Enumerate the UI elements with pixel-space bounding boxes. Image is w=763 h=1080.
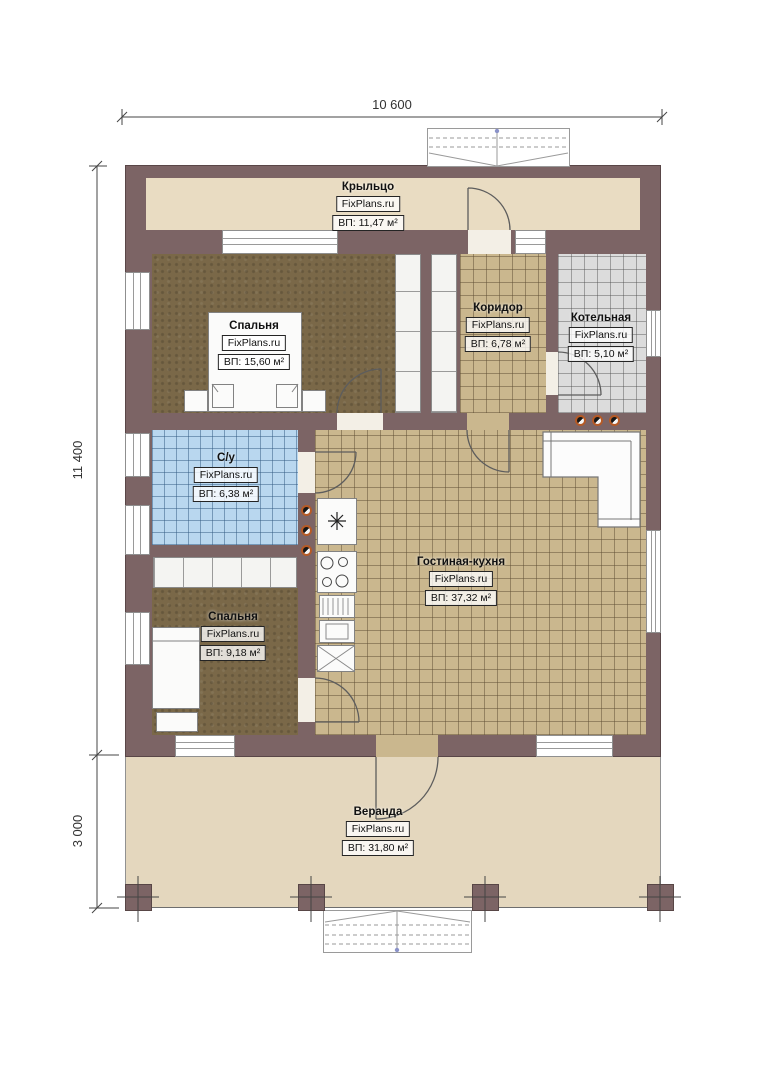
living-window-right	[646, 530, 661, 633]
single-bed	[152, 627, 200, 709]
room-name: Веранда	[354, 806, 403, 818]
label-boiler: Котельная FixPlans.ru ВП: 5,10 м²	[568, 312, 634, 362]
label-porch: Крыльцо FixPlans.ru ВП: 11,47 м²	[332, 181, 404, 231]
room-area: ВП: 15,60 м²	[218, 354, 290, 370]
dishwasher	[319, 595, 355, 618]
watermark: FixPlans.ru	[346, 821, 411, 837]
watermark: FixPlans.ru	[466, 317, 531, 333]
flue-vent-icon	[592, 415, 603, 426]
boiler-window-right	[646, 310, 661, 357]
entrance-stairs-top	[427, 128, 570, 167]
living-window-bottom	[536, 735, 613, 757]
flue-vent-icon	[301, 505, 312, 516]
veranda-column	[647, 884, 674, 911]
veranda-stairs-bottom	[323, 910, 472, 953]
label-bathroom: С/у FixPlans.ru ВП: 6,38 м²	[193, 452, 259, 502]
nightstand-right	[302, 390, 326, 412]
bathroom-door-opening	[298, 452, 315, 493]
pillow-right	[276, 384, 298, 408]
bedroom2-window-bottom	[175, 735, 235, 757]
room-name: Крыльцо	[342, 181, 394, 193]
room-area: ВП: 31,80 м²	[342, 840, 414, 856]
flue-vent-icon	[301, 545, 312, 556]
corridor-wardrobe	[431, 254, 457, 413]
bedside-table	[156, 712, 198, 732]
watermark: FixPlans.ru	[569, 327, 634, 343]
watermark: FixPlans.ru	[336, 196, 401, 212]
bedroom2-window-left	[125, 612, 150, 665]
flue-vent-icon	[301, 525, 312, 536]
kitchen-cabinet	[319, 620, 355, 643]
corridor-living-opening	[467, 413, 509, 430]
room-area: ВП: 37,32 м²	[425, 590, 497, 606]
room-name: Спальня	[208, 611, 258, 623]
veranda-column	[125, 884, 152, 911]
room-name: Спальня	[229, 320, 279, 332]
fridge	[317, 645, 355, 672]
bathroom-window-lower	[125, 505, 150, 555]
label-bedroom2: Спальня FixPlans.ru ВП: 9,18 м²	[200, 611, 266, 661]
veranda-column	[298, 884, 325, 911]
label-veranda: Веранда FixPlans.ru ВП: 31,80 м²	[342, 806, 414, 856]
dimension-height-veranda: 3 000	[70, 815, 85, 848]
stove	[317, 551, 357, 593]
watermark: FixPlans.ru	[429, 571, 494, 587]
room-area: ВП: 6,78 м²	[465, 336, 531, 352]
entry-door-opening	[468, 230, 511, 254]
bedroom1-window-left	[125, 272, 150, 330]
room-area: ВП: 5,10 м²	[568, 346, 634, 362]
label-bedroom1: Спальня FixPlans.ru ВП: 15,60 м²	[218, 320, 290, 370]
watermark: FixPlans.ru	[222, 335, 287, 351]
floor-plan: 10 600 11 400 3 000	[0, 0, 763, 1080]
flue-vent-icon	[609, 415, 620, 426]
dimension-height-main: 11 400	[70, 441, 85, 480]
veranda-door-opening	[376, 735, 438, 757]
bedroom1-wardrobe	[395, 254, 421, 413]
bedroom1-door-opening	[337, 413, 383, 430]
room-name: С/у	[217, 452, 235, 464]
room-area: ВП: 6,38 м²	[193, 486, 259, 502]
bedroom2-door-opening	[298, 678, 315, 722]
nightstand-left	[184, 390, 208, 412]
room-area: ВП: 9,18 м²	[200, 645, 266, 661]
watermark: FixPlans.ru	[194, 467, 259, 483]
room-name: Котельная	[571, 312, 631, 324]
kitchen-counter	[317, 498, 357, 545]
label-corridor: Коридор FixPlans.ru ВП: 6,78 м²	[465, 302, 531, 352]
room-name: Гостиная-кухня	[417, 556, 505, 568]
watermark: FixPlans.ru	[201, 626, 266, 642]
bathroom-cabinet-row	[153, 557, 297, 588]
boiler-door-opening	[546, 352, 558, 395]
room-name: Коридор	[473, 302, 523, 314]
label-living: Гостиная-кухня FixPlans.ru ВП: 37,32 м²	[417, 556, 505, 606]
veranda-column	[472, 884, 499, 911]
corridor-window-porch	[515, 230, 546, 254]
room-area: ВП: 11,47 м²	[332, 215, 404, 231]
bedroom1-window-porch	[222, 230, 338, 254]
pillow-left	[212, 384, 234, 408]
bathroom-window-upper	[125, 433, 150, 477]
flue-vent-icon	[575, 415, 586, 426]
dimension-width-total: 10 600	[372, 97, 412, 112]
